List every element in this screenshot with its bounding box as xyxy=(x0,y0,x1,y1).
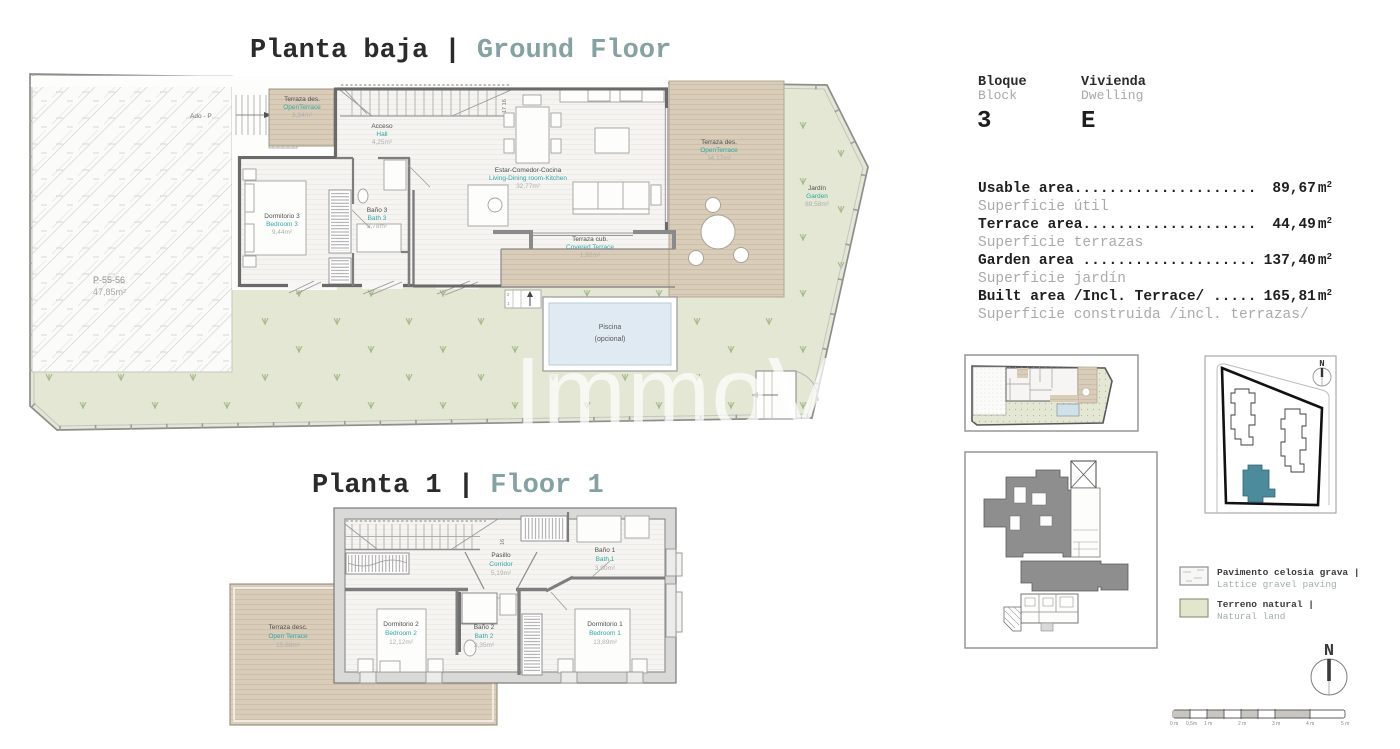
svg-text:Bedroom 2: Bedroom 2 xyxy=(385,630,417,637)
svg-text:Ado - P: Ado - P xyxy=(190,113,212,120)
svg-text:15,88m²: 15,88m² xyxy=(276,642,301,649)
svg-text:165,81m2: 165,81m2 xyxy=(1264,288,1332,305)
svg-text:OpenTerrace: OpenTerrace xyxy=(283,104,321,111)
svg-text:ImmoVar: ImmoVar xyxy=(514,337,919,449)
svg-text:Natural land: Natural land xyxy=(1217,611,1285,622)
svg-text:1 m: 1 m xyxy=(1204,721,1212,727)
svg-text:Garden area ..................: Garden area .................... xyxy=(978,253,1256,269)
svg-text:89,67m2: 89,67m2 xyxy=(1272,180,1332,197)
svg-text:OpenTerrace: OpenTerrace xyxy=(700,147,738,154)
svg-text:4,25m²: 4,25m² xyxy=(372,139,393,146)
svg-text:Dormitorio 2: Dormitorio 2 xyxy=(383,621,419,628)
svg-text:Superficie terrazas: Superficie terrazas xyxy=(978,235,1143,251)
svg-text:Superficie útil: Superficie útil xyxy=(978,199,1109,215)
svg-text:Superficie construida /incl. t: Superficie construida /incl. terrazas/ xyxy=(978,307,1309,323)
svg-text:Usable area...................: Usable area..................... xyxy=(978,181,1256,197)
svg-text:89,58m²: 89,58m² xyxy=(805,201,830,208)
svg-text:N: N xyxy=(1324,642,1334,661)
svg-text:Terraza cub.: Terraza cub. xyxy=(572,236,608,243)
svg-text:4 m: 4 m xyxy=(1306,721,1314,727)
svg-text:Superficie jardín: Superficie jardín xyxy=(978,271,1126,287)
svg-text:Garden: Garden xyxy=(806,193,828,200)
svg-text:Terrace area..................: Terrace area.................... xyxy=(978,217,1256,233)
svg-text:9,44m²: 9,44m² xyxy=(272,229,293,236)
svg-text:3: 3 xyxy=(977,108,991,135)
svg-text:Living-Dining room-Kitchen: Living-Dining room-Kitchen xyxy=(489,175,567,182)
svg-text:Dwelling: Dwelling xyxy=(1081,88,1143,103)
svg-text:Bedroom 3: Bedroom 3 xyxy=(266,221,298,228)
svg-text:3,34m²: 3,34m² xyxy=(292,112,313,119)
svg-text:Estar-Comedor-Cocina: Estar-Comedor-Cocina xyxy=(495,167,562,174)
svg-text:Planta baja | Ground Floor: Planta baja | Ground Floor xyxy=(250,36,671,66)
svg-text:Covered Terrace: Covered Terrace xyxy=(566,244,614,251)
svg-text:Block: Block xyxy=(978,88,1017,103)
svg-text:E: E xyxy=(1081,108,1095,135)
svg-text:3,35m²: 3,35m² xyxy=(474,642,495,649)
svg-text:Hall: Hall xyxy=(376,131,388,138)
svg-text:5 m: 5 m xyxy=(1341,721,1349,727)
svg-text:Bath 3: Bath 3 xyxy=(368,215,387,222)
svg-text:Dormitorio 3: Dormitorio 3 xyxy=(264,213,300,220)
svg-text:5,19m²: 5,19m² xyxy=(491,570,512,577)
svg-text:0,5m: 0,5m xyxy=(1186,721,1197,727)
svg-text:Jardín: Jardín xyxy=(808,185,826,192)
svg-text:Dormitorio 1: Dormitorio 1 xyxy=(587,621,623,628)
svg-text:Terraza desc.: Terraza desc. xyxy=(268,624,307,631)
svg-text:3 m: 3 m xyxy=(1272,721,1280,727)
svg-text:12,12m²: 12,12m² xyxy=(389,639,414,646)
svg-text:Built area /Incl. Terrace/ ...: Built area /Incl. Terrace/ ..... xyxy=(978,289,1256,305)
svg-text:13,89m²: 13,89m² xyxy=(593,639,618,646)
svg-text:N: N xyxy=(1319,359,1324,369)
svg-text:Piscina: Piscina xyxy=(599,324,622,331)
svg-text:Bath 2: Bath 2 xyxy=(475,633,494,640)
svg-text:Planta 1 | Floor 1: Planta 1 | Floor 1 xyxy=(312,471,604,501)
svg-text:17 16: 17 16 xyxy=(502,99,508,113)
svg-text:Acceso: Acceso xyxy=(371,123,393,130)
svg-text:3,90m²: 3,90m² xyxy=(595,565,616,572)
svg-text:137,40m2: 137,40m2 xyxy=(1264,252,1332,269)
svg-text:1,92m²: 1,92m² xyxy=(580,252,601,259)
svg-text:44,49m2: 44,49m2 xyxy=(1272,216,1332,233)
svg-text:Baño 1: Baño 1 xyxy=(595,547,616,554)
svg-text:Pavimento celosia grava |: Pavimento celosia grava | xyxy=(1217,567,1360,578)
svg-text:Bath 1: Bath 1 xyxy=(596,556,615,563)
svg-text:Bedroom 1: Bedroom 1 xyxy=(589,630,621,637)
svg-text:Baño 3: Baño 3 xyxy=(367,207,388,214)
svg-text:Open Terrace: Open Terrace xyxy=(268,633,308,640)
svg-text:2 m: 2 m xyxy=(1238,721,1246,727)
svg-text:3,78m²: 3,78m² xyxy=(367,223,388,230)
svg-text:Pasillo: Pasillo xyxy=(491,552,511,559)
svg-text:0 m: 0 m xyxy=(1170,721,1178,727)
svg-text:Terreno natural |: Terreno natural | xyxy=(1217,599,1314,610)
svg-text:16: 16 xyxy=(500,539,506,545)
svg-text:Baño 2: Baño 2 xyxy=(474,624,495,631)
svg-text:Corridor: Corridor xyxy=(489,561,513,568)
svg-text:47,85m²: 47,85m² xyxy=(93,287,126,297)
svg-text:Terraza des.: Terraza des. xyxy=(284,96,320,103)
svg-text:P-55-56: P-55-56 xyxy=(93,275,125,285)
svg-text:32,77m²: 32,77m² xyxy=(516,183,541,190)
svg-text:Terraza des.: Terraza des. xyxy=(701,139,737,146)
svg-text:34,17m²: 34,17m² xyxy=(707,155,732,162)
svg-text:Lattice gravel paving: Lattice gravel paving xyxy=(1217,579,1337,590)
